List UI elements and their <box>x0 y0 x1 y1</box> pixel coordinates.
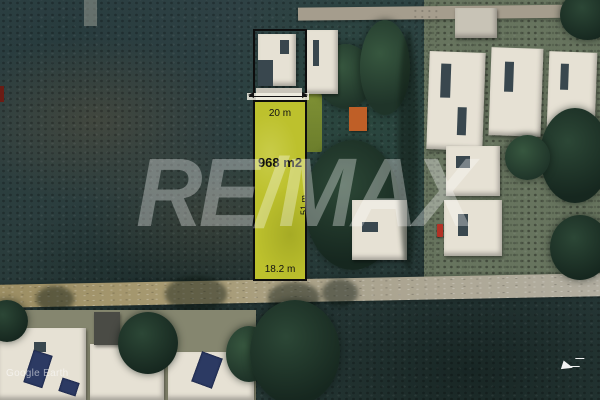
orange-roof-building <box>349 107 367 131</box>
remax-watermark: RE/MAX <box>136 144 472 241</box>
building <box>488 47 543 137</box>
dark-roof-building <box>94 312 120 345</box>
top-left-path <box>84 0 97 26</box>
left-edge-red-mark <box>0 86 4 102</box>
road-tree-shadow <box>165 276 227 312</box>
lot-front-measure: 20 m <box>255 108 305 119</box>
pointer-arrow-icon <box>562 362 573 371</box>
lot-rear-measure: 18.2 m <box>255 264 305 275</box>
building <box>305 30 338 94</box>
road-tree-shadow <box>36 286 74 312</box>
tree-canopy <box>118 312 178 374</box>
front-dimension-arrows <box>249 96 307 97</box>
google-earth-attribution: Google Earth <box>6 368 69 379</box>
satellite-listing-photo: 20 m 968 m2 51 m 18.2 m RE/MAX Google Ea… <box>0 0 600 400</box>
tree-canopy <box>250 300 340 400</box>
road-tree-shadow <box>322 279 358 307</box>
building <box>426 51 485 151</box>
house-on-lot <box>258 34 296 86</box>
front-dimension-strip <box>247 93 309 100</box>
building <box>455 8 497 38</box>
tree-canopy <box>505 135 550 180</box>
